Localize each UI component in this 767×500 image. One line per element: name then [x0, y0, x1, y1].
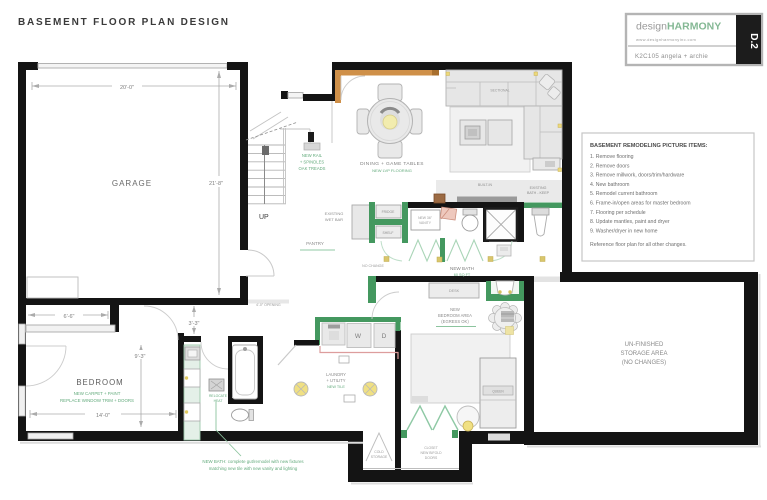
svg-text:www.designharmonyinc.com: www.designharmonyinc.com [636, 37, 697, 42]
svg-text:NEW BATH: NEW BATH [450, 266, 474, 271]
svg-text:FRIDGE: FRIDGE [382, 210, 396, 214]
svg-text:matching new tile with new van: matching new tile with new vanity and li… [209, 466, 298, 471]
svg-text:4. New bathroom: 4. New bathroom [590, 182, 630, 188]
svg-text:3. Remove millwork, doors/trim: 3. Remove millwork, doors/trim/hardware [590, 173, 684, 179]
svg-text:STORAGE: STORAGE [371, 455, 388, 459]
svg-text:BASEMENT REMODELING PICTURE IT: BASEMENT REMODELING PICTURE ITEMS: [590, 143, 708, 149]
svg-text:SHELF: SHELF [383, 231, 394, 235]
svg-text:5. Remodel current bathroom: 5. Remodel current bathroom [590, 191, 657, 197]
svg-text:D: D [382, 333, 387, 340]
svg-text:VANITY: VANITY [419, 221, 432, 225]
svg-text:DESK: DESK [449, 289, 460, 293]
svg-text:9'-3": 9'-3" [135, 354, 146, 360]
svg-text:RELOCATE: RELOCATE [209, 394, 228, 398]
svg-text:60 SQ FT: 60 SQ FT [454, 273, 471, 277]
svg-text:LAUNDRY: LAUNDRY [326, 372, 346, 377]
svg-text:NEW BIFOLD: NEW BIFOLD [420, 451, 442, 455]
svg-text:20'-0": 20'-0" [120, 85, 134, 91]
svg-text:UN-FINISHED: UN-FINISHED [625, 342, 664, 348]
svg-text:NEW LVP FLOORING: NEW LVP FLOORING [372, 168, 412, 173]
svg-text:BEDROOM: BEDROOM [76, 378, 123, 387]
svg-text:D.2: D.2 [748, 33, 759, 49]
svg-text:Reference floor plan for all o: Reference floor plan for all other chang… [590, 242, 687, 248]
svg-text:WET BAR: WET BAR [325, 217, 343, 222]
svg-text:4'-0" OPENING: 4'-0" OPENING [256, 303, 281, 307]
svg-text:PANTRY: PANTRY [306, 241, 324, 246]
svg-text:CLOSET: CLOSET [424, 446, 438, 450]
svg-text:HEAT: HEAT [214, 399, 223, 403]
svg-text:OAK TREADS: OAK TREADS [299, 166, 326, 171]
svg-text:3'-3": 3'-3" [189, 321, 200, 327]
svg-text:BATH - KEEP: BATH - KEEP [527, 191, 550, 195]
svg-text:QUEEN: QUEEN [492, 390, 504, 394]
svg-text:NEW CARPET + PAINT: NEW CARPET + PAINT [74, 391, 121, 396]
svg-text:1. Remove flooring: 1. Remove flooring [590, 154, 634, 160]
svg-text:NEW TILE: NEW TILE [327, 385, 345, 389]
svg-text:DINING + GAME TABLES: DINING + GAME TABLES [360, 161, 424, 167]
svg-text:NEW 36": NEW 36" [418, 216, 433, 220]
svg-text:UP: UP [259, 214, 269, 221]
svg-text:W: W [355, 333, 362, 340]
svg-text:9. Washer/dryer in new home: 9. Washer/dryer in new home [590, 228, 658, 234]
svg-text:COLD: COLD [374, 450, 384, 454]
svg-text:EXISTING: EXISTING [530, 186, 547, 190]
svg-text:BEDROOM AREA: BEDROOM AREA [438, 313, 472, 318]
svg-text:BUILT-IN: BUILT-IN [478, 183, 493, 187]
svg-text:EXISTING: EXISTING [325, 211, 344, 216]
svg-text:6'-6": 6'-6" [64, 314, 75, 320]
svg-text:STORAGE AREA: STORAGE AREA [621, 351, 668, 357]
svg-text:NEW RAIL: NEW RAIL [302, 153, 323, 158]
svg-text:21'-8": 21'-8" [209, 181, 223, 187]
svg-text:DOORS: DOORS [425, 456, 438, 460]
svg-text:(NO CHANGES): (NO CHANGES) [622, 360, 666, 366]
svg-text:SECTIONAL: SECTIONAL [490, 89, 509, 93]
svg-text:+ UTILITY: + UTILITY [326, 378, 345, 383]
svg-text:2. Remove doors: 2. Remove doors [590, 163, 630, 169]
svg-text:7. Flooring per schedule: 7. Flooring per schedule [590, 210, 646, 216]
svg-text:(EGRESS OK): (EGRESS OK) [441, 319, 469, 324]
svg-text:NEW: NEW [450, 307, 460, 312]
svg-text:NO CHANGE: NO CHANGE [362, 264, 384, 268]
svg-text:14'-0": 14'-0" [96, 413, 110, 419]
svg-text:+ SPINDLES: + SPINDLES [300, 160, 325, 165]
svg-text:designHARMONY: designHARMONY [636, 21, 721, 33]
svg-text:K2C105 angela + archie: K2C105 angela + archie [635, 53, 708, 60]
svg-text:REPLACE WINDOW TRIM + DOORS: REPLACE WINDOW TRIM + DOORS [60, 398, 134, 403]
svg-text:8. Update mantles, paint and d: 8. Update mantles, paint and dryer [590, 219, 670, 225]
svg-text:BASEMENT FLOOR PLAN DESIGN: BASEMENT FLOOR PLAN DESIGN [18, 17, 230, 28]
svg-text:NEW BATH: complete gut/remodel: NEW BATH: complete gut/remodel with new … [202, 459, 304, 464]
svg-text:GARAGE: GARAGE [112, 179, 152, 188]
svg-text:6. Frame-in/open areas for mas: 6. Frame-in/open areas for master bedroo… [590, 201, 691, 207]
